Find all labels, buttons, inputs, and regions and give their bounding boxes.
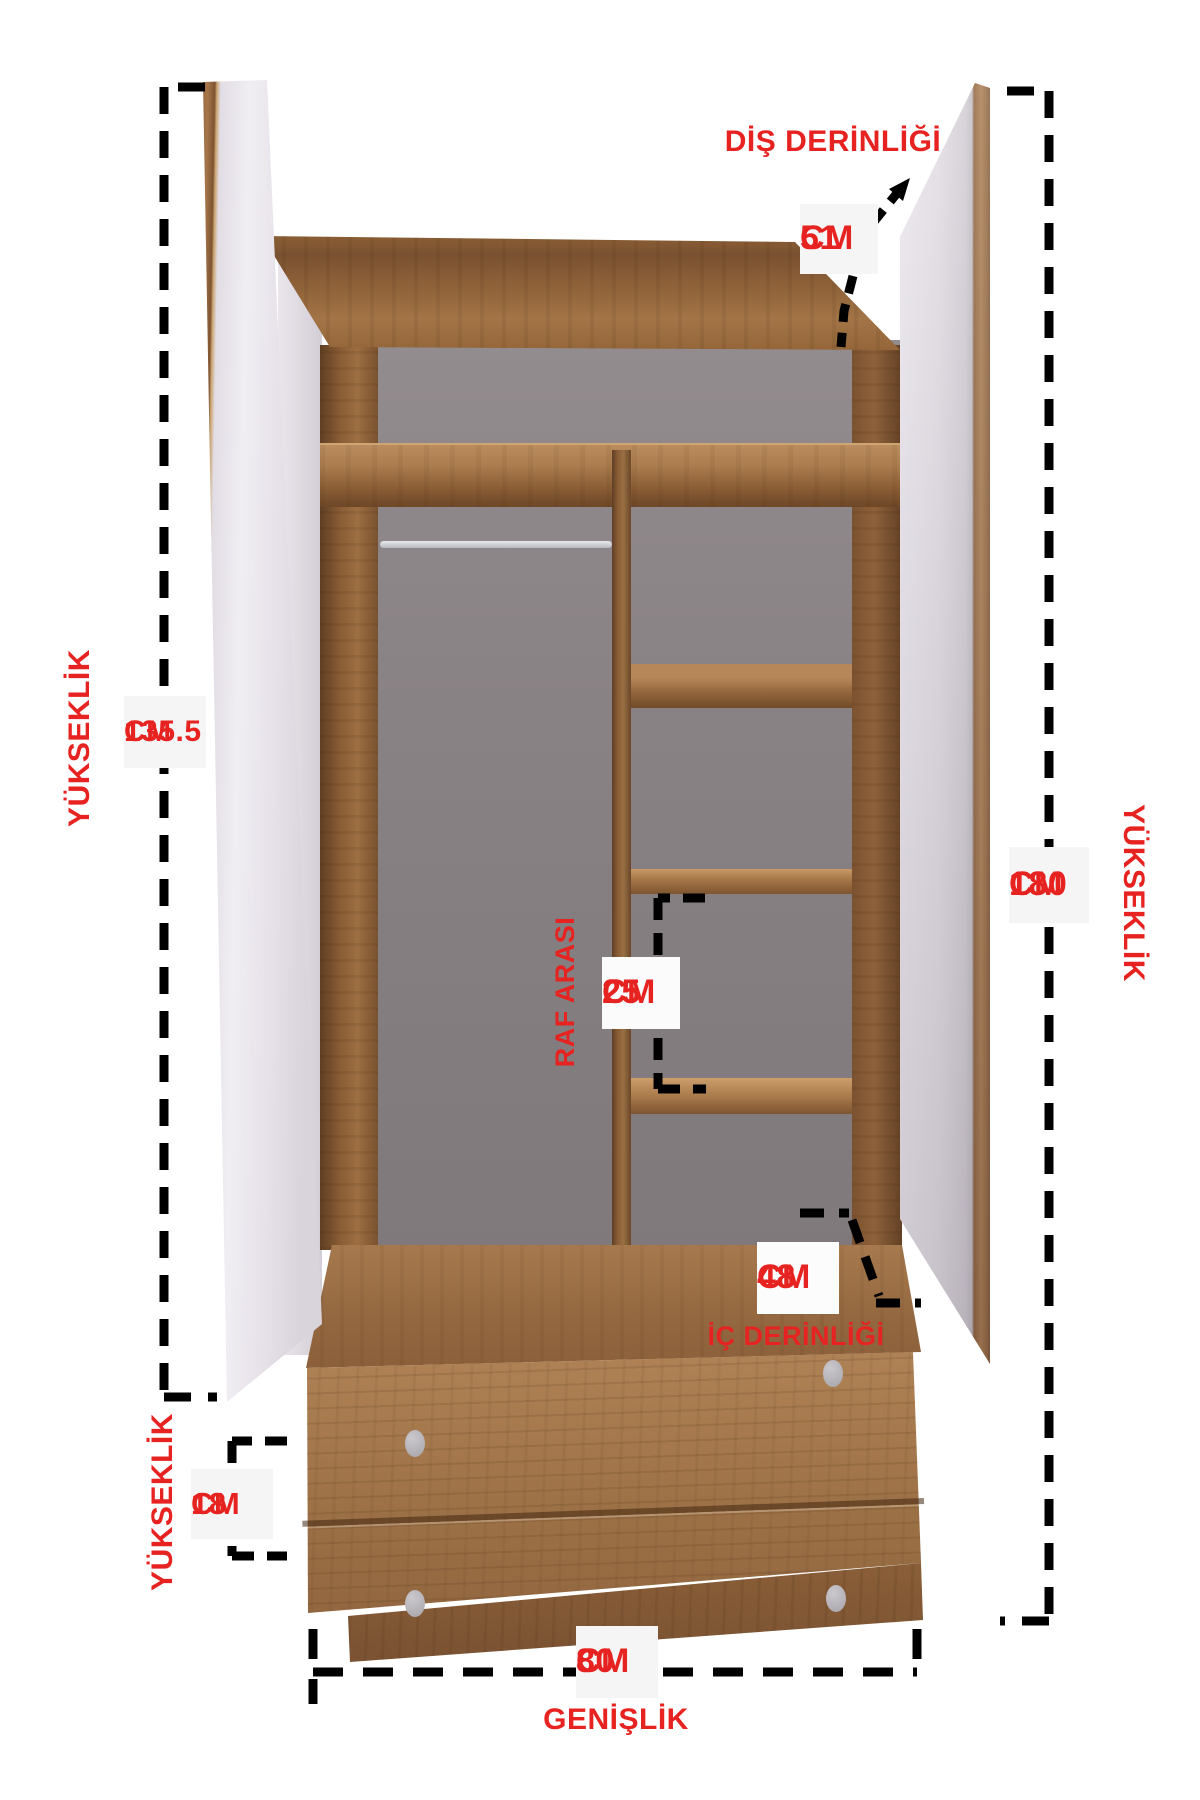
- drawer-knob: [823, 1360, 843, 1387]
- drawer-knob: [826, 1585, 846, 1612]
- outer-depth-unit: CM: [800, 221, 854, 256]
- drawer-height-unit: CM: [191, 1488, 240, 1520]
- width-unit: CM: [576, 1644, 630, 1679]
- shelf-spacing-value-box: 25 CM: [602, 957, 680, 1029]
- drawer-knob: [405, 1430, 425, 1457]
- inner-depth-label: İÇ DERİNLİĞİ: [696, 1322, 896, 1351]
- shelf-spacing-label: RAF ARASI: [548, 882, 584, 1102]
- inner-depth-unit: CM: [757, 1260, 811, 1295]
- width-label: GENİŞLİK: [506, 1704, 726, 1736]
- door-height-label: YÜKSEKLİK: [62, 628, 98, 848]
- hanging-rod: [380, 541, 612, 548]
- outer-depth-value-box: 51 CM: [800, 204, 878, 274]
- door-height-value-box: 135.5 CM: [124, 696, 206, 768]
- wardrobe-dimension-diagram: DİŞ DERİNLİĞİ 51 CM YÜKSEKLİK 135.5 CM 1…: [0, 0, 1200, 1800]
- drawer-height-value-box: 18 CM: [191, 1469, 273, 1539]
- inner-depth-value-box: 48 CM: [757, 1242, 839, 1314]
- right-shelf-1: [631, 664, 852, 708]
- shelf-spacing-unit: CM: [602, 975, 656, 1010]
- center-divider: [612, 450, 631, 1250]
- right-door-open: [898, 83, 992, 1367]
- door-height-unit: CM: [124, 716, 172, 747]
- top-full-shelf: [320, 443, 902, 507]
- drawer-knob: [405, 1590, 425, 1617]
- total-height-unit: CM: [1009, 867, 1063, 902]
- right-shelf-3: [631, 1078, 852, 1114]
- outer-depth-arrowhead: [889, 178, 910, 201]
- total-height-label: YÜKSEKLİK: [1115, 783, 1151, 1003]
- outer-depth-label: DİŞ DERİNLİĞİ: [723, 126, 943, 158]
- drawer-height-label: YÜKSEKLİK: [145, 1392, 181, 1612]
- total-height-value-box: 180 CM: [1009, 847, 1089, 923]
- right-shelf-2: [631, 869, 852, 894]
- width-value-box: 80 CM: [576, 1626, 658, 1698]
